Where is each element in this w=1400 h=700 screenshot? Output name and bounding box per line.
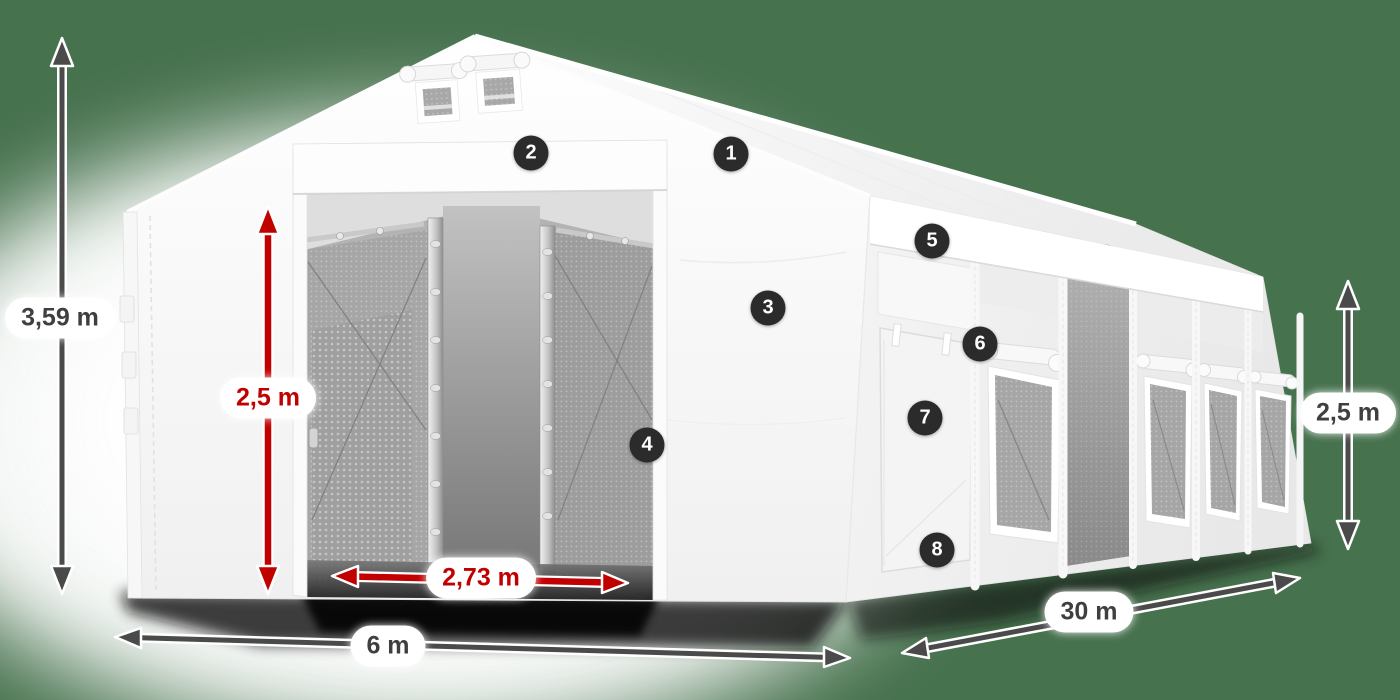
dimension-label-side-height: 2,5 m (1300, 393, 1396, 434)
front-door-opening (304, 186, 656, 600)
dimension-label-total-height: 3,59 m (5, 298, 115, 339)
callout-badge-1[interactable]: 1 (714, 137, 749, 172)
dimension-label-door-width: 2,73 m (426, 558, 536, 599)
dimension-label-length: 30 m (1045, 592, 1134, 633)
dimension-label-door-height: 2,5 m (220, 378, 316, 419)
tent-side-wall (846, 196, 1311, 602)
callout-badge-7[interactable]: 7 (908, 401, 943, 436)
door-handle (309, 428, 318, 448)
callout-badge-6[interactable]: 6 (963, 327, 998, 362)
callout-badge-8[interactable]: 8 (920, 533, 955, 568)
callout-badge-2[interactable]: 2 (514, 136, 549, 171)
door-header-band (293, 140, 667, 194)
dimension-label-front-width: 6 m (350, 626, 425, 667)
callout-badge-3[interactable]: 3 (751, 291, 786, 326)
tent-dimension-diagram: 3,59 m 2,5 m 2,73 m 6 m 30 m 2,5 m 1 2 3… (0, 0, 1400, 700)
callout-badge-5[interactable]: 5 (915, 224, 950, 259)
callout-badge-4[interactable]: 4 (630, 428, 665, 463)
tent-illustration (0, 0, 1400, 700)
interior-back (443, 206, 540, 568)
